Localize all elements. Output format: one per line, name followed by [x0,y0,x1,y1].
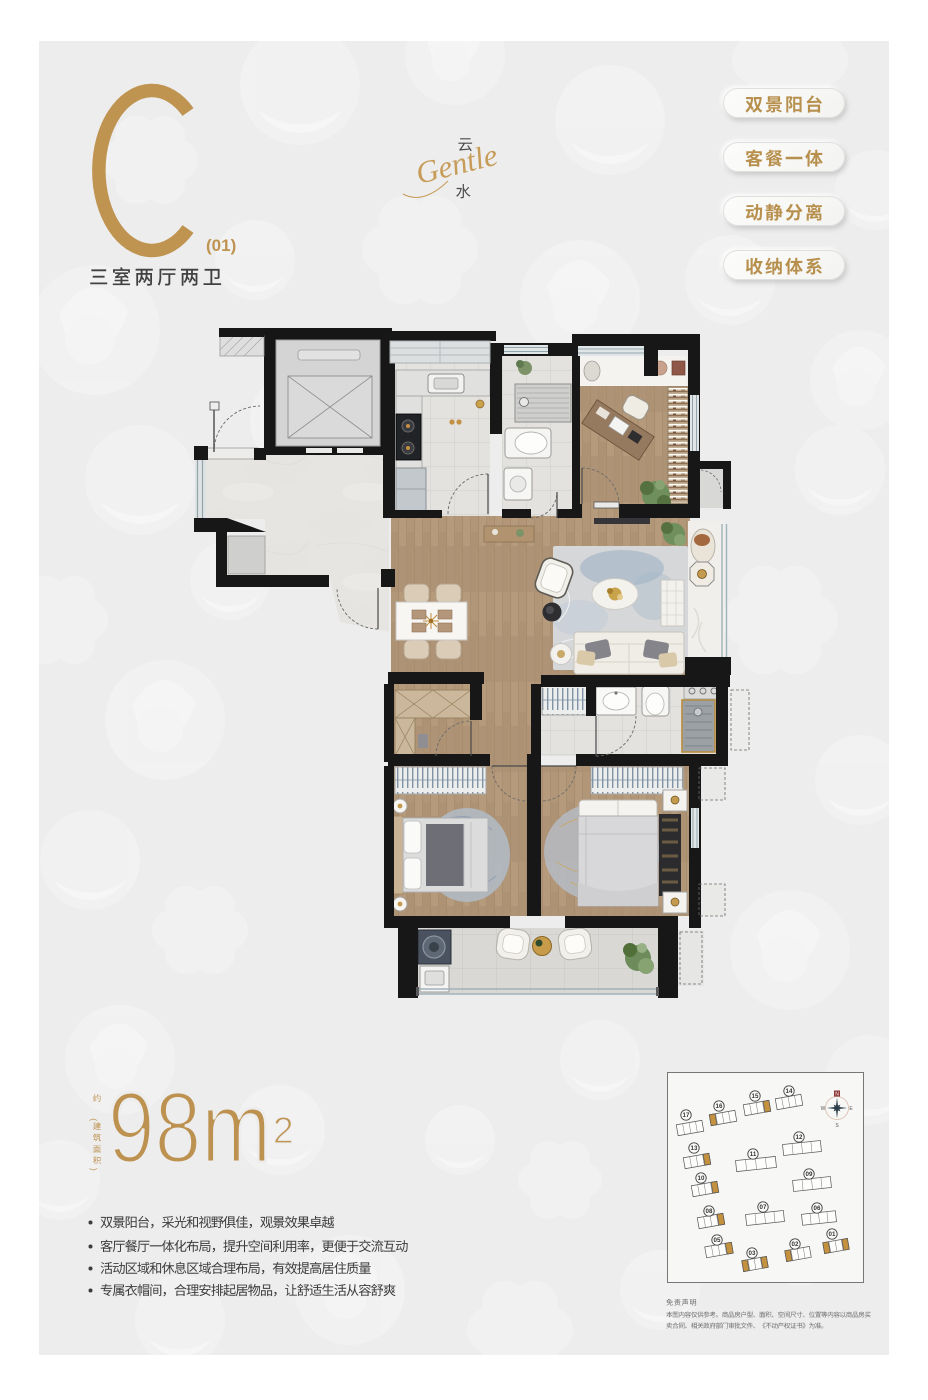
svg-text:08: 08 [706,1208,713,1215]
svg-text:03: 03 [749,1250,756,1257]
svg-text:N: N [835,1092,839,1098]
svg-text:07: 07 [760,1204,767,1211]
svg-text:01: 01 [829,1231,836,1238]
svg-text:W: W [821,1106,826,1112]
svg-text:13: 13 [691,1145,698,1152]
svg-text:05: 05 [714,1237,721,1244]
svg-text:06: 06 [814,1205,821,1212]
svg-text:11: 11 [750,1151,757,1158]
svg-text:10: 10 [698,1175,705,1182]
svg-text:2: 2 [273,1110,294,1151]
svg-text:09: 09 [806,1171,813,1178]
svg-text:17: 17 [683,1112,690,1119]
svg-text:15: 15 [752,1093,759,1100]
svg-text:02: 02 [792,1241,799,1248]
svg-text:16: 16 [716,1103,723,1110]
svg-text:98m: 98m [108,1072,271,1184]
svg-text:14: 14 [786,1088,793,1095]
svg-text:12: 12 [796,1134,803,1141]
